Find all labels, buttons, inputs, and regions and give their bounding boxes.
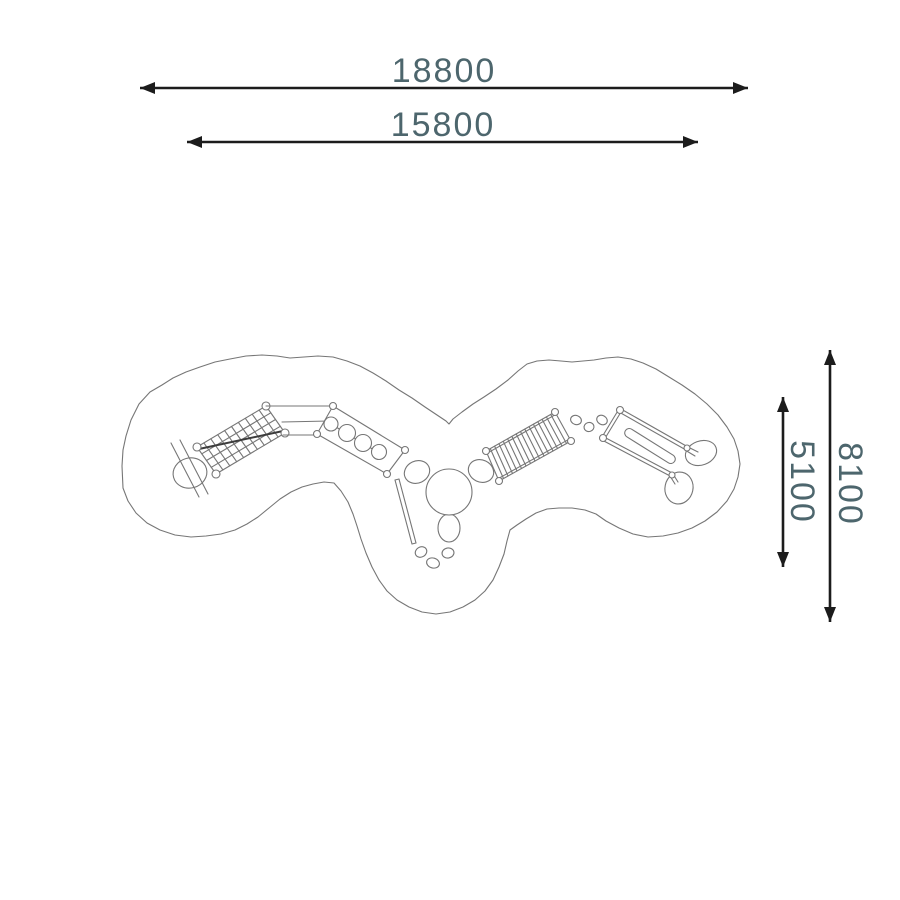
dimension-label-inner-depth: 5100 xyxy=(783,440,821,524)
slide-post xyxy=(669,472,675,478)
slide-start-crossbar xyxy=(602,409,619,437)
platform-bottom xyxy=(438,514,460,542)
dimension-inner-depth: 5100 xyxy=(783,397,821,567)
stepping-stone xyxy=(583,421,595,432)
walkway-rail-middle xyxy=(282,421,329,422)
slide-start-crossbar xyxy=(604,412,621,440)
bridge-post xyxy=(314,431,321,438)
slide-post xyxy=(684,445,690,451)
platform-center xyxy=(426,469,472,515)
slide-rail xyxy=(604,437,674,474)
stepping-stone xyxy=(569,414,582,426)
slide-post xyxy=(617,407,624,414)
slide-exit-mound-top xyxy=(682,436,720,469)
stepping-stone xyxy=(595,413,609,426)
ladder-post xyxy=(483,448,490,455)
balance-beam-edge xyxy=(395,480,412,544)
dimension-label-overall-depth: 8100 xyxy=(831,442,869,526)
bridge-post xyxy=(402,447,409,454)
bridge-post xyxy=(330,403,337,410)
ladder-post xyxy=(496,478,503,485)
balance-beam-cap xyxy=(395,479,399,480)
slide-post xyxy=(600,435,607,442)
stepping-stones-middle xyxy=(569,413,609,432)
balance-beam-edge xyxy=(399,479,416,543)
stepper-pod xyxy=(324,417,338,431)
pod-bridge xyxy=(314,403,409,478)
slide-bed xyxy=(623,427,677,465)
ladder-post xyxy=(552,409,559,416)
stepping-stones-bottom xyxy=(413,545,454,570)
stepping-stone xyxy=(413,545,428,560)
spinner-bar-1 xyxy=(171,443,199,497)
balance-beam xyxy=(395,479,416,544)
stepper-pod xyxy=(372,445,387,460)
dimension-inner-width: 15800 xyxy=(187,106,698,144)
slide-rail xyxy=(621,409,688,447)
bridge-post xyxy=(384,471,391,478)
net-post xyxy=(193,443,201,451)
dimension-label-inner-width: 15800 xyxy=(391,106,496,144)
central-platforms xyxy=(401,456,498,542)
plan-drawing-canvas: 18800 15800 8100 5100 xyxy=(0,0,900,900)
dimension-overall-width: 18800 xyxy=(140,52,748,90)
stepper-pod xyxy=(339,425,356,442)
slide-rail xyxy=(619,412,686,450)
dimension-label-overall-width: 18800 xyxy=(392,52,497,90)
dimension-overall-depth: 8100 xyxy=(830,350,869,622)
stepper-pod xyxy=(355,435,372,452)
ladder-post xyxy=(568,438,575,445)
net-climber xyxy=(193,402,289,478)
rung-ladder xyxy=(483,409,575,485)
stepping-stone xyxy=(425,556,440,569)
rung-ladder-rail xyxy=(498,439,570,479)
plan-drawing-page: 18800 15800 8100 5100 xyxy=(0,0,900,900)
balance-beam-cap xyxy=(412,543,416,544)
net-post xyxy=(212,470,220,478)
net-post xyxy=(281,429,289,437)
slide xyxy=(600,407,721,507)
stepping-stone xyxy=(441,547,455,559)
